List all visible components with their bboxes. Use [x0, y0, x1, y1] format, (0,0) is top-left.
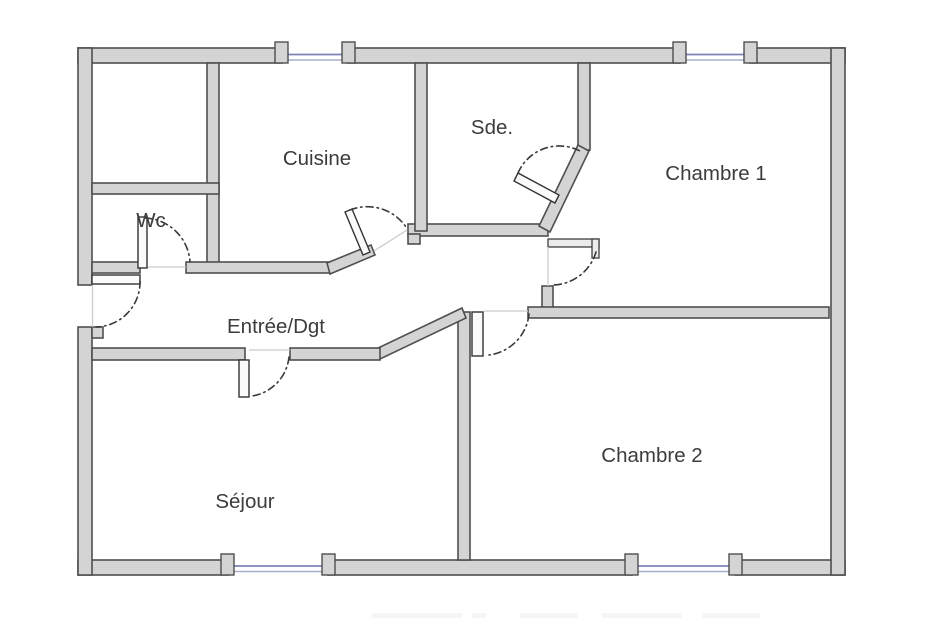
- window-jamb: [744, 42, 757, 63]
- entree-sejour-wall-left: [92, 348, 245, 360]
- window-jamb: [673, 42, 686, 63]
- room-label-chambre2: Chambre 2: [601, 444, 702, 467]
- sejour-door-leaf: [239, 360, 249, 397]
- room-label-entree: Entrée/Dgt: [227, 315, 325, 338]
- room-label-cuisine: Cuisine: [283, 147, 351, 170]
- entree-sejour-diagonal-wall: [376, 308, 466, 359]
- room-label-wc: Wc: [136, 209, 166, 232]
- top-cuisine-window: [282, 50, 348, 62]
- entrance-door-leaf: [92, 275, 140, 284]
- entrance-jamb-cap: [92, 327, 103, 338]
- door-leaves: [92, 173, 559, 397]
- window-jamb: [322, 554, 335, 575]
- window-jamb: [275, 42, 288, 63]
- chambre2-door-swing: [489, 314, 529, 355]
- exterior-wall-top-left-segment: [78, 48, 282, 63]
- bottom-edge-artifacts: [372, 613, 760, 618]
- top-chambre1-window: [680, 50, 750, 62]
- wc-bottom-wall: [92, 262, 140, 273]
- sde-door-leaf: [514, 173, 559, 203]
- closet-wc-divider-wall: [92, 183, 219, 194]
- closet-right-wall: [207, 63, 219, 268]
- sde-right-wall: [578, 63, 590, 150]
- entrance-door-swing: [96, 281, 140, 327]
- exterior-wall-bottom-right-segment: [735, 560, 845, 575]
- cuisine-door-threshold: [374, 230, 407, 251]
- bottom-sejour-window: [228, 562, 328, 574]
- sde-left-wall: [415, 63, 427, 231]
- sde-bottom-wall-jog: [408, 234, 420, 244]
- floor-plan-canvas: Wc Cuisine Sde. Chambre 1 Entrée/Dgt Séj…: [0, 0, 946, 619]
- interior-walls: [92, 63, 829, 560]
- sejour-chambre2-divider-wall: [458, 312, 470, 560]
- chambre1-door-swing: [553, 252, 596, 285]
- window-jamb: [221, 554, 234, 575]
- sde-bottom-wall: [408, 224, 548, 236]
- cuisine-bottom-wall: [186, 262, 332, 273]
- hall-stub-wall: [548, 239, 599, 247]
- room-label-chambre1: Chambre 1: [665, 162, 766, 185]
- floor-plan-drawing: Wc Cuisine Sde. Chambre 1 Entrée/Dgt Séj…: [0, 0, 946, 619]
- exterior-wall-right: [831, 48, 845, 575]
- cuisine-door-leaf: [345, 209, 370, 255]
- window-jamb: [625, 554, 638, 575]
- chambre2-door-leaf: [472, 312, 483, 356]
- bottom-chambre2-window: [632, 562, 735, 574]
- exterior-wall-top-middle-segment: [348, 48, 680, 63]
- window-jamb: [729, 554, 742, 575]
- sejour-door-swing: [252, 357, 289, 396]
- exterior-wall-left-upper-segment: [78, 48, 92, 285]
- chambre1-chambre2-divider-wall: [528, 307, 829, 318]
- exterior-wall-bottom-middle-segment: [328, 560, 632, 575]
- exterior-wall-left-lower-segment: [78, 327, 92, 575]
- room-label-sejour: Séjour: [215, 490, 274, 513]
- window-jamb: [342, 42, 355, 63]
- exterior-wall-bottom-left-segment: [78, 560, 228, 575]
- room-label-sde: Sde.: [471, 116, 513, 139]
- entree-sejour-wall-right: [290, 348, 380, 360]
